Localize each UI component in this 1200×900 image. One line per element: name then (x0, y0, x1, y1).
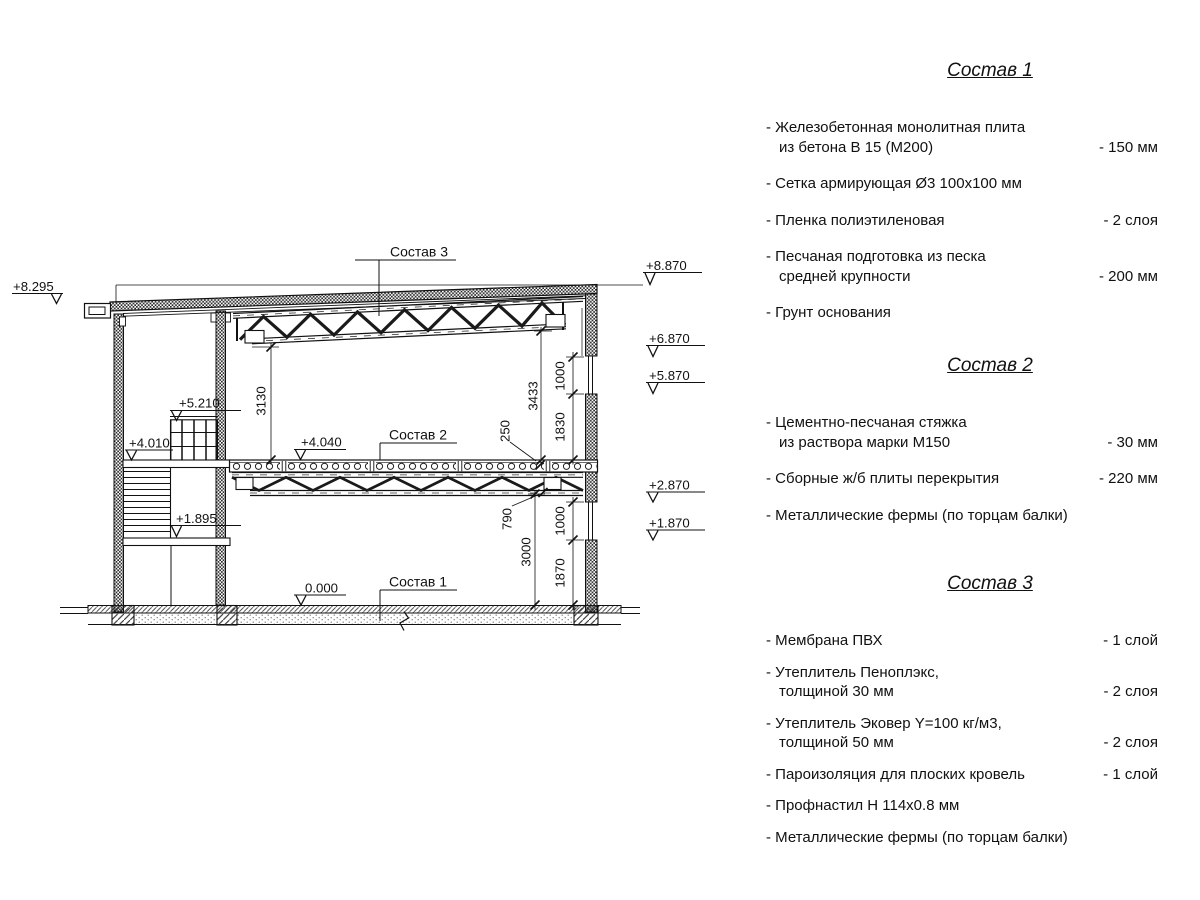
elevation-label: +8.295 (13, 279, 54, 294)
spec-section-sostav3: Состав 3 - Мембрана ПВХ - 1 слой - Утепл… (766, 573, 1158, 859)
wall-top-pad (120, 317, 126, 326)
callout-label: Состав 2 (389, 427, 447, 443)
roof-assembly (85, 285, 644, 319)
spec-item: - Профнастил Н 114х0.8 мм (766, 796, 1158, 816)
dim-lower-height: 3000 (519, 537, 534, 566)
elevation-label: +8.870 (646, 258, 687, 273)
callout-label: Состав 3 (390, 244, 448, 260)
floor-slab (123, 460, 598, 472)
callout-label: Состав 1 (389, 574, 447, 590)
spec-item: - Пароизоляция для плоских кровель - 1 с… (766, 765, 1158, 785)
spec-item-value: - 220 мм (1091, 469, 1158, 489)
spec-item-text: - Пленка полиэтиленовая (766, 211, 945, 231)
roof-truss-bearing-right (546, 315, 565, 328)
elevation-win1-bottom: +5.870 (646, 368, 705, 394)
spec-item-value: - 30 мм (1099, 433, 1158, 453)
roof-truss-bearing-left (245, 331, 264, 344)
dim-hall-height-right: 3433 (526, 381, 541, 410)
elevation-label: +5.870 (649, 368, 690, 383)
spec-item-text: - Металлические фермы (по торцам балки) (766, 506, 1068, 526)
spec-item: - Цементно-песчаная стяжка из раствора м… (766, 413, 1158, 452)
elevation-ground: 0.000 (294, 581, 346, 606)
stair-flight (123, 472, 170, 532)
railing (170, 417, 218, 461)
elevation-roof-right: +8.870 (643, 258, 702, 285)
elevation-win1-top: +6.870 (646, 331, 705, 357)
spec-item-text: - Сетка армирующая Ø3 100х100 мм (766, 174, 1022, 194)
spec-item: - Утеплитель Пеноплэкс, толщиной 30 мм -… (766, 663, 1158, 702)
spec-item-text: - Профнастил Н 114х0.8 мм (766, 796, 959, 816)
elevation-label: +2.870 (649, 478, 690, 493)
roof-truss-web-diagonals (240, 303, 563, 340)
floor-truss-bearing-left (236, 478, 253, 490)
blueprint-page: 3130 3433 250 1000 1830 790 3000 1000 18… (0, 0, 1200, 900)
wall-top-pad (211, 313, 216, 322)
spec-title: Состав 3 (794, 573, 1186, 595)
dim-win1-height: 1000 (553, 361, 568, 390)
spec-item-text: - Железобетонная монолитная плита из бет… (766, 118, 1025, 157)
spec-item-value: - 2 слоя (1095, 733, 1158, 753)
spec-item: - Грунт основания (766, 303, 1158, 323)
floor-truss-web-diagonals (232, 477, 583, 490)
eave-gutter-profile (89, 307, 105, 315)
dim-win1-sill: 1830 (553, 412, 568, 441)
spec-item: - Пленка полиэтиленовая - 2 слоя (766, 211, 1158, 231)
spec-item-text: - Утеплитель Эковер Y=100 кг/м3, толщино… (766, 714, 1002, 753)
spec-item-value: - 2 слоя (1095, 211, 1158, 231)
spec-title: Состав 1 (794, 60, 1186, 82)
spec-item: - Сетка армирующая Ø3 100х100 мм (766, 174, 1158, 194)
elevation-win2-bottom: +1.870 (646, 516, 705, 541)
elevation-landing-upper: +4.010 (125, 436, 173, 461)
spec-item-text: - Грунт основания (766, 303, 891, 323)
dim-floor-package: 250 (498, 420, 513, 442)
spec-item: - Мембрана ПВХ - 1 слой (766, 631, 1158, 651)
landing-slab-mid (123, 538, 230, 546)
sand-layer (237, 614, 574, 624)
spec-item: - Металлические фермы (по торцам балки) (766, 828, 1158, 848)
spec-item-value: - 150 мм (1091, 138, 1158, 158)
dimension-lines (252, 308, 584, 610)
spec-item-text: - Сборные ж/б плиты перекрытия (766, 469, 999, 489)
spec-section-sostav2: Состав 2 - Цементно-песчаная стяжка из р… (766, 355, 1158, 542)
spec-title: Состав 2 (794, 355, 1186, 377)
spec-item: - Песчаная подготовка из песка средней к… (766, 247, 1158, 286)
elevation-label: +6.870 (649, 331, 690, 346)
elevation-win2-top: +2.870 (646, 478, 705, 503)
spec-section-sostav1: Состав 1 - Железобетонная монолитная пли… (766, 60, 1158, 340)
spec-item-text: - Утеплитель Пеноплэкс, толщиной 30 мм (766, 663, 939, 702)
elevation-eave-left: +8.295 (12, 279, 63, 304)
spec-item-value: - 200 мм (1091, 267, 1158, 287)
elevation-label: 0.000 (305, 581, 338, 596)
right-wall-lower (586, 540, 598, 612)
dim-win2-sill: 1870 (553, 558, 568, 587)
elevation-slab-main: +4.040 (294, 435, 346, 460)
elevation-label: +4.010 (129, 436, 170, 451)
ground-assembly (60, 606, 640, 631)
right-wall-upper (586, 294, 598, 356)
roof-truss-bottom-chord-axis (252, 326, 566, 341)
left-wall (114, 314, 124, 612)
spec-item: - Металлические фермы (по торцам балки) (766, 506, 1158, 526)
spec-item-text: - Песчаная подготовка из песка средней к… (766, 247, 986, 286)
elevation-label: +4.040 (301, 435, 342, 450)
spec-item-text: - Пароизоляция для плоских кровель (766, 765, 1025, 785)
elevation-label: +1.895 (176, 511, 217, 526)
spec-item-value: - 2 слоя (1095, 682, 1158, 702)
ground-slab-strip (88, 606, 621, 614)
spec-item: - Утеплитель Эковер Y=100 кг/м3, толщино… (766, 714, 1158, 753)
callout-sostav2: Состав 2 (380, 427, 457, 461)
spec-item-text: - Металлические фермы (по торцам балки) (766, 828, 1068, 848)
foundation-middle (217, 606, 237, 626)
elevation-label: +1.870 (649, 516, 690, 531)
spec-item-value: - 1 слой (1095, 765, 1158, 785)
dim-win2-height: 1000 (553, 506, 568, 535)
section-drawing: 3130 3433 250 1000 1830 790 3000 1000 18… (0, 0, 760, 900)
callout-sostav1: Состав 1 (380, 574, 457, 622)
floor-truss-bearing-right (544, 478, 561, 490)
spec-item: - Железобетонная монолитная плита из бет… (766, 118, 1158, 157)
dim-truss-depth: 790 (500, 508, 515, 530)
dimension-texts: 3130 3433 250 1000 1830 790 3000 1000 18… (254, 361, 568, 587)
right-wall-middle (586, 394, 598, 502)
spec-item-text: - Цементно-песчаная стяжка из раствора м… (766, 413, 967, 452)
elevation-label: +5.210 (179, 396, 220, 411)
elevation-landing-mid: +1.895 (170, 511, 241, 537)
sand-layer (134, 614, 217, 624)
dim-hall-height-left: 3130 (254, 386, 269, 415)
landing-slab-upper (123, 460, 230, 468)
spec-item-value: - 1 слой (1095, 631, 1158, 651)
spec-item: - Сборные ж/б плиты перекрытия - 220 мм (766, 469, 1158, 489)
floor-truss (232, 473, 583, 496)
wall-top-pad (226, 313, 231, 322)
spec-item-text: - Мембрана ПВХ (766, 631, 883, 651)
